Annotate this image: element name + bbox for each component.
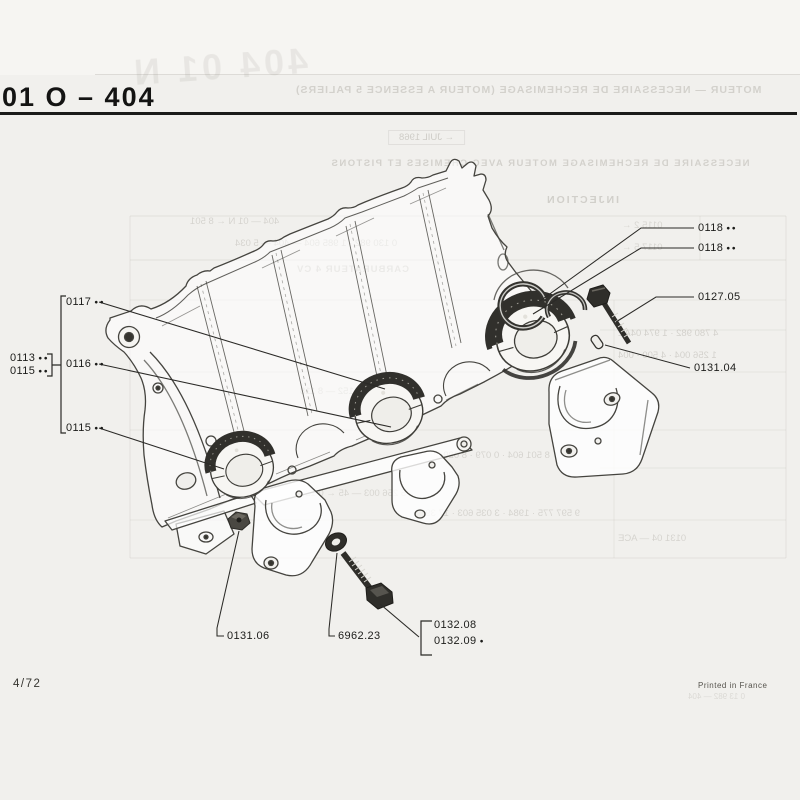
side-bolt	[587, 285, 630, 343]
hex-nut	[228, 512, 250, 530]
scanned-parts-catalog-page: { "page": { "title": "01 O – 404", "foot…	[0, 0, 800, 800]
page-title: 01 O – 404	[2, 82, 156, 113]
seal-pin	[590, 334, 605, 350]
title-rule	[0, 112, 797, 115]
callout-6962-23: 6962.23	[338, 630, 381, 642]
callout-0118-lower: 0118●●	[698, 242, 737, 254]
callout-0118-upper: 0118●●	[698, 222, 737, 234]
printed-in-france-note: Printed in France	[698, 681, 767, 690]
callout-0115-left: 0115●●	[10, 365, 49, 377]
engine-block	[106, 159, 568, 554]
page-number: 4/72	[13, 678, 41, 690]
callout-0132-08: 0132.08	[434, 619, 477, 631]
callout-0131-04: 0131.04	[694, 362, 737, 374]
callout-0117: 0117●●	[66, 296, 105, 308]
callout-0127-05: 0127.05	[698, 291, 741, 303]
callout-0113: 0113●●	[10, 352, 49, 364]
cap-bolt	[343, 553, 393, 609]
bearing-cap-front	[252, 480, 333, 576]
bearing-cap-center	[392, 451, 459, 524]
callout-0131-06: 0131.06	[227, 630, 270, 642]
bearing-cap-rear	[549, 357, 659, 477]
engine-diagram	[0, 0, 800, 800]
callout-0116: 0116●●	[66, 358, 105, 370]
callout-0132-09: 0132.09●	[434, 635, 485, 647]
callout-0115: 0115●●	[66, 422, 105, 434]
